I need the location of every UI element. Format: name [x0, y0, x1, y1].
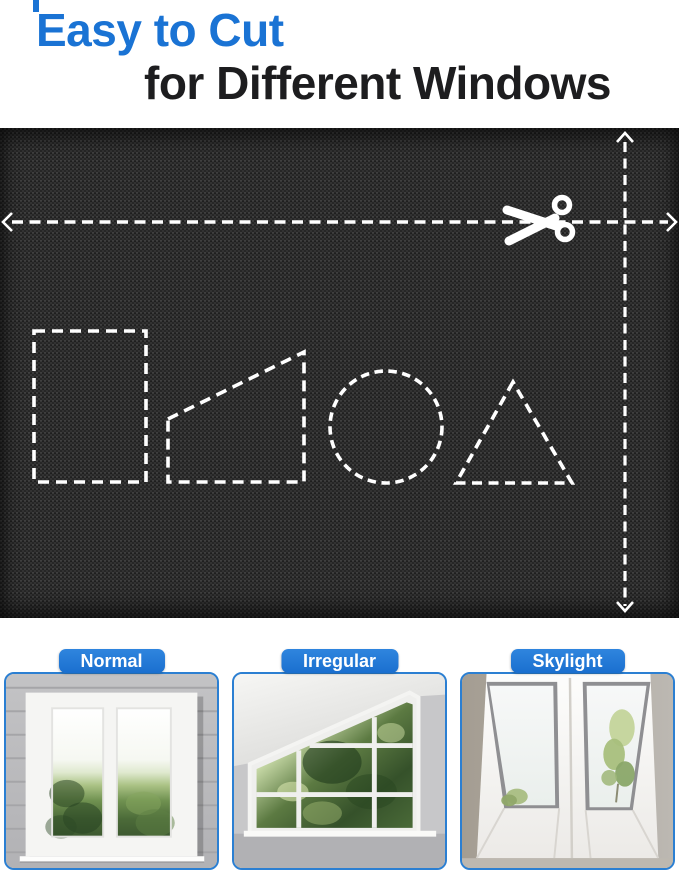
up-arrow-icon	[617, 133, 633, 142]
cut-guides	[0, 128, 679, 618]
normal-window-image	[4, 672, 219, 870]
left-arrow-icon	[3, 213, 12, 231]
irregular-window-image	[232, 672, 447, 870]
card-irregular: Irregular	[232, 649, 447, 870]
skylight-window-illustration	[462, 674, 673, 868]
cut-shape-triangle	[456, 382, 572, 483]
window-type-label-skylight: Skylight	[510, 649, 624, 673]
down-arrow-icon	[617, 602, 633, 611]
right-arrow-icon	[667, 213, 676, 231]
irregular-window-illustration	[234, 674, 445, 868]
card-skylight: Skylight	[460, 649, 675, 870]
window-type-label-normal: Normal	[58, 649, 164, 673]
product-infographic: { "page": { "background": "#ffffff", "ac…	[0, 0, 679, 874]
page-title-line-2: for Different Windows	[144, 57, 611, 109]
scissors-icon	[507, 198, 573, 242]
cut-shape-rectangle	[34, 331, 146, 482]
fabric-panel	[0, 128, 679, 618]
page-title-line-1: Easy to Cut	[36, 4, 284, 56]
window-type-label-irregular: Irregular	[281, 649, 398, 673]
window-cards-row: Normal	[4, 649, 675, 870]
card-normal: Normal	[4, 649, 219, 870]
normal-window-illustration	[6, 674, 217, 868]
cut-shape-trapezoid	[168, 352, 304, 482]
cut-shape-circle	[330, 371, 442, 483]
skylight-window-image	[460, 672, 675, 870]
